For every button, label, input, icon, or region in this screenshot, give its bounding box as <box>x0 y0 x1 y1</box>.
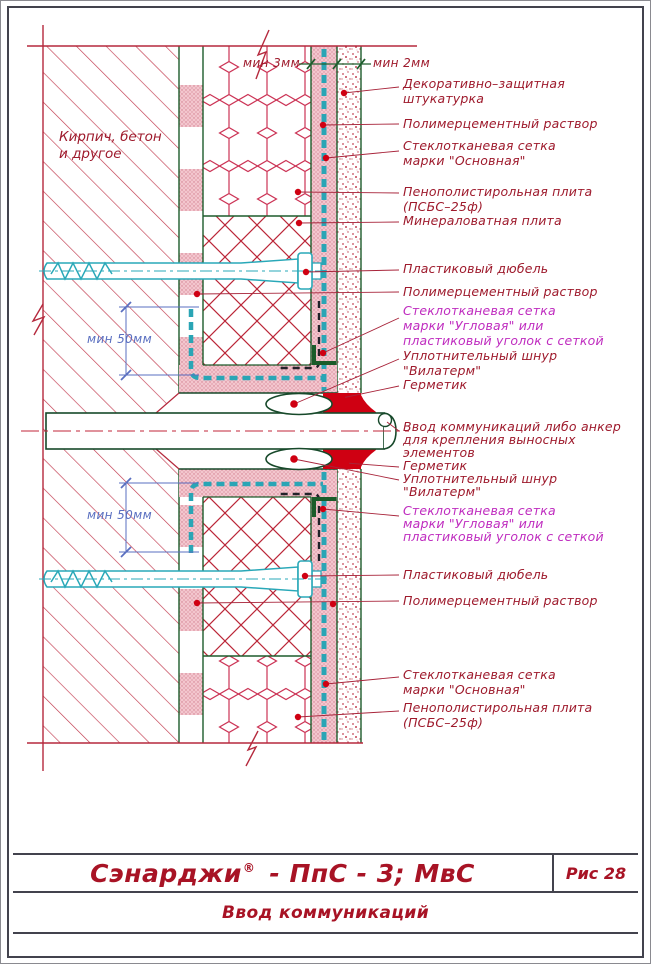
label-polystyrene-board-1: Пенополистирольная плита(ПСБС–25ф) <box>403 184 592 214</box>
label-plastic-dowel-1: Пластиковый дюбель <box>403 261 548 276</box>
label-communication-entry: Ввод коммуникаций либо анкердля креплени… <box>403 420 621 459</box>
label-vilaterm-cord-2: Уплотнительный шнур"Вилатерм" <box>403 472 557 498</box>
page: Кирпич, бетон и другое мин 3мм мин 2мм м… <box>0 0 651 964</box>
page-title: Сэнарджи®- ПпС - 3; МвС <box>13 855 552 891</box>
dimension-min-50mm-upper: мин 50мм <box>87 332 152 346</box>
label-polystyrene-board-2: Пенополистирольная плита(ПСБС–25ф) <box>403 700 592 730</box>
wall-note-line: Кирпич, бетон <box>59 129 162 146</box>
label-decorative-plaster: Декоративно–защитнаяштукатурка <box>403 76 565 106</box>
figure-number: Рис 28 <box>552 855 638 891</box>
label-vilaterm-cord-1: Уплотнительный шнур"Вилатерм" <box>403 348 557 378</box>
product-name: Сэнарджи <box>90 859 242 888</box>
label-mineral-wool-board: Минераловатная плита <box>403 213 562 228</box>
label-polymer-cement-mortar-1: Полимерцементный раствор <box>403 116 598 131</box>
label-polymer-cement-mortar-2: Полимерцементный раствор <box>403 284 598 299</box>
product-suffix: - ПпС - 3; МвС <box>269 859 475 888</box>
label-polymer-cement-mortar-3: Полимерцементный раствор <box>403 593 598 608</box>
title-row: Сэнарджи®- ПпС - 3; МвС Рис 28 <box>13 855 638 893</box>
dimension-min-3mm: мин 3мм <box>243 56 300 70</box>
registered-trademark: ® <box>243 861 256 875</box>
wall-note-line: и другое <box>59 146 162 163</box>
dimension-min-2mm: мин 2мм <box>373 56 430 70</box>
title-block: Сэнарджи®- ПпС - 3; МвС Рис 28 Ввод комм… <box>13 853 638 934</box>
label-sealant-1: Герметик <box>403 377 467 392</box>
dimension-min-50mm-lower: мин 50мм <box>87 508 152 522</box>
label-base-glass-mesh-2: Стеклотканевая сеткамарки "Основная" <box>403 667 556 697</box>
label-plastic-dowel-2: Пластиковый дюбель <box>403 567 548 582</box>
wall-material-note: Кирпич, бетон и другое <box>59 129 162 163</box>
drawing-caption: Ввод коммуникаций <box>13 893 638 932</box>
label-corner-mesh-1: Стеклотканевая сеткамарки "Угловая" илип… <box>403 303 604 348</box>
label-base-glass-mesh-1: Стеклотканевая сеткамарки "Основная" <box>403 138 556 168</box>
label-corner-mesh-2: Стеклотканевая сеткамарки "Угловая" илип… <box>403 504 604 543</box>
